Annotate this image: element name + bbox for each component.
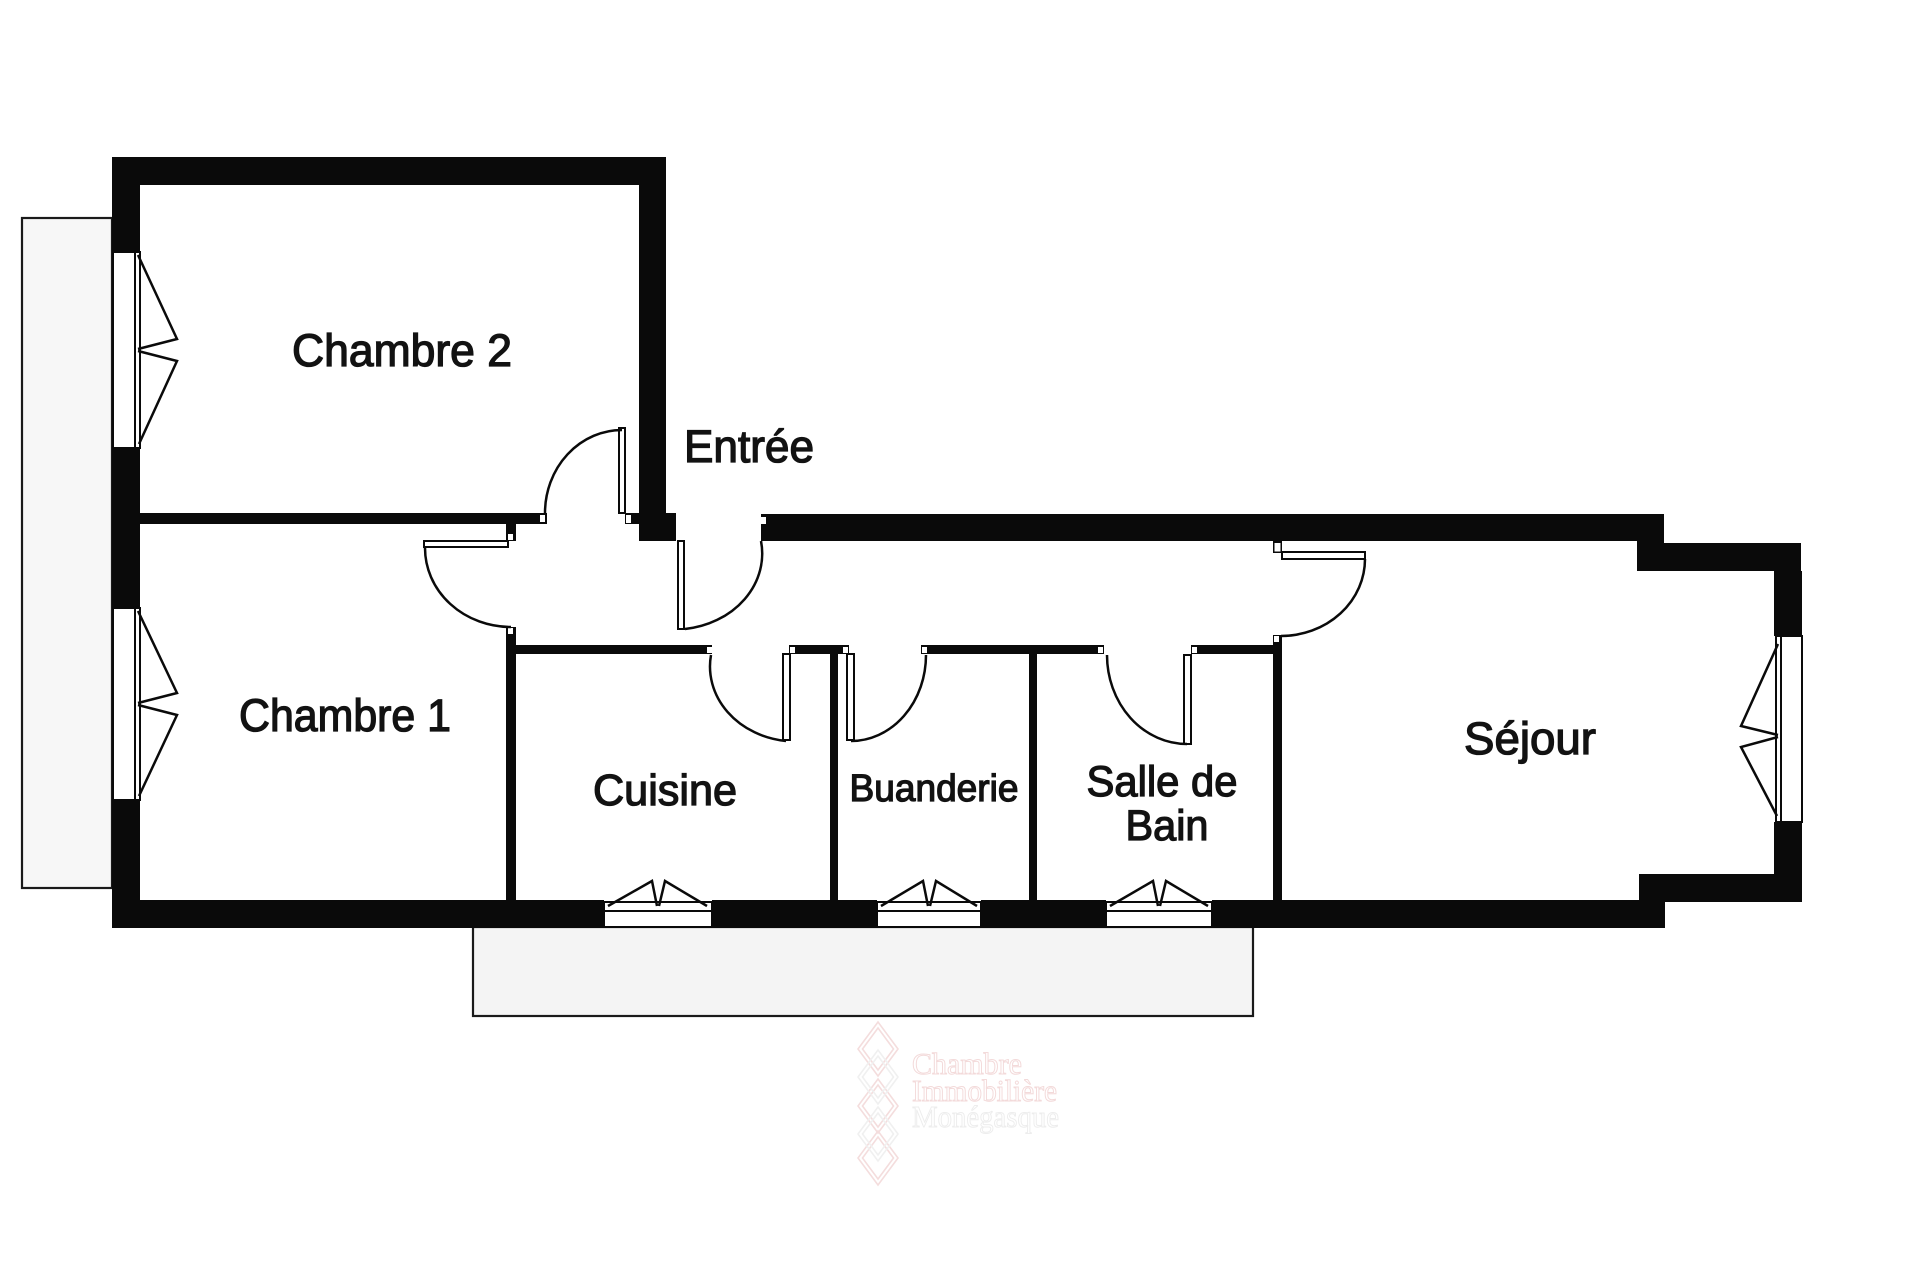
svg-text:Monégasque: Monégasque	[912, 1099, 1059, 1134]
svg-text:Chambre 2: Chambre 2	[292, 325, 512, 376]
svg-text:Chambre 1: Chambre 1	[239, 690, 451, 741]
svg-text:Cuisine: Cuisine	[593, 766, 737, 815]
svg-text:Séjour: Séjour	[1464, 713, 1596, 764]
svg-text:Bain: Bain	[1126, 802, 1209, 850]
svg-text:Buanderie: Buanderie	[850, 768, 1019, 810]
svg-text:Salle de: Salle de	[1087, 758, 1238, 806]
svg-text:Entrée: Entrée	[684, 421, 814, 472]
